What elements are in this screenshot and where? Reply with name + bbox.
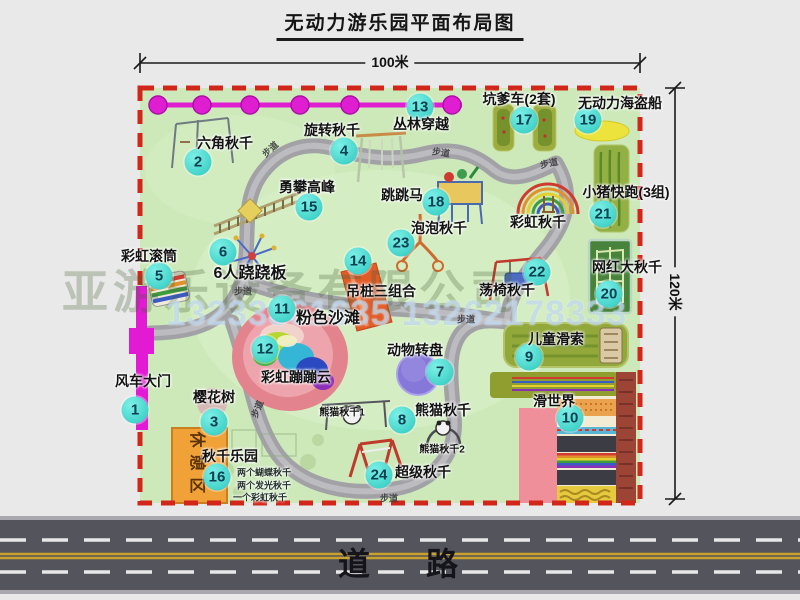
walkway-label-4: 步道 [457,313,475,326]
map-label-0: 彩虹秋千 [510,212,566,232]
attraction-label-2: 六角秋千 [197,133,253,153]
walkway-label-1: 步道 [431,144,451,159]
attraction-marker-1: 1 [122,397,149,424]
attraction-label-11: 粉色沙滩 [296,304,360,328]
walkway-label-3: 步道 [234,285,252,298]
map-label-5: 一个彩虹秋千 [233,491,287,504]
attraction-label-8: 熊猫秋千 [415,400,471,420]
attraction-marker-7: 7 [427,359,454,386]
park-layout-poster: 亚游乐设备有限公司 13233861635 13262178333 无动力游乐园… [0,0,800,600]
attraction-marker-24: 24 [366,462,393,489]
attraction-label-19: 无动力海盗船 [578,93,662,113]
attraction-label-22: 荡椅秋千 [479,280,535,300]
attraction-label-24: 超级秋千 [395,462,451,482]
map-label-3: 两个蝴蝶秋千 [237,466,291,479]
attraction-label-20: 网红大秋千 [592,257,662,277]
attraction-marker-18: 18 [423,189,450,216]
attraction-label-16: 秋千乐园 [202,446,258,466]
width-dimension-label: 100米 [365,52,414,72]
attraction-marker-12: 12 [252,336,279,363]
attraction-label-10: 滑世界 [533,391,575,411]
attraction-label-3: 樱花树 [193,387,235,407]
attraction-marker-17: 17 [511,107,538,134]
attraction-label-15: 勇攀高峰 [279,177,335,197]
attraction-label-6: 6人跷跷板 [214,259,287,283]
attraction-marker-5: 5 [146,263,173,290]
map-label-1: 熊猫秋千1 [319,404,365,419]
attraction-label-21: 小猪快跑(3组) [582,182,669,202]
attraction-label-18: 跳跳马 [381,185,423,205]
attraction-label-13: 丛林穿越 [393,114,449,134]
attraction-label-4: 旋转秋千 [304,120,360,140]
attraction-marker-3: 3 [201,409,228,436]
attraction-label-1: 风车大门 [115,371,171,391]
attraction-marker-11: 11 [269,296,296,323]
road-label: 道路 [338,539,514,585]
attraction-marker-4: 4 [331,138,358,165]
attraction-marker-14: 14 [345,248,372,275]
page-title: 无动力游乐园平面布局图 [276,8,523,41]
attraction-label-17: 坑爹车(2套) [482,89,555,109]
map-label-2: 熊猫秋千2 [419,441,465,456]
height-dimension-label: 120米 [665,267,685,316]
attraction-marker-20: 20 [596,281,623,308]
attraction-label-14: 吊桩三组合 [346,281,416,301]
attraction-label-7: 动物转盘 [387,340,443,360]
attraction-label-5: 彩虹滚筒 [121,246,177,266]
attraction-label-23: 泡泡秋千 [411,218,467,238]
attraction-marker-15: 15 [296,194,323,221]
attraction-marker-21: 21 [590,201,617,228]
attraction-label-9: 儿童滑索 [528,329,584,349]
walkway-label-6: 步道 [380,492,398,505]
attraction-marker-16: 16 [204,464,231,491]
attraction-label-12: 彩虹蹦蹦云 [261,367,331,387]
attraction-marker-8: 8 [389,407,416,434]
